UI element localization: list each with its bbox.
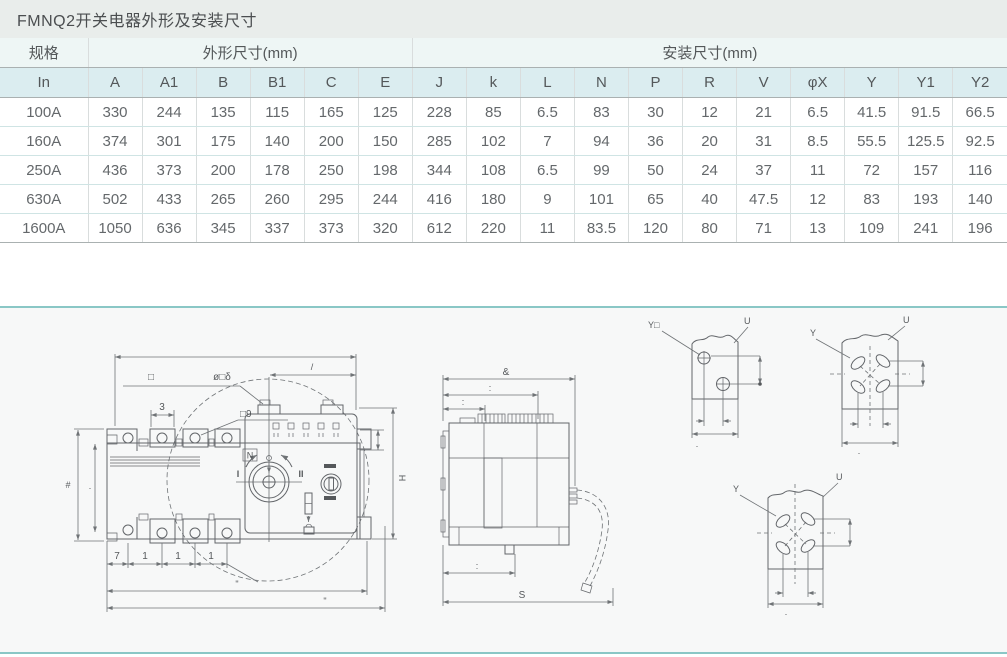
value-cell: 373 [142,156,196,185]
column-header: φX [791,68,845,98]
value-cell: 140 [953,185,1007,214]
value-cell: 193 [899,185,953,214]
table-group-header-row: 规格 外形尺寸(mm) 安装尺寸(mm) [0,38,1007,68]
table-row: 1600A10506363453373733206122201183.51208… [0,214,1007,243]
value-cell: 374 [88,127,142,156]
indicator-squares [273,423,339,437]
value-cell: 20 [683,127,737,156]
value-cell: 265 [196,185,250,214]
position-ii-label: II [298,469,303,479]
spacer [0,243,1007,306]
value-cell: 320 [358,214,412,243]
value-cell: 295 [304,185,358,214]
front-view-drawing: I II N [65,354,407,612]
plate3-plate-label: U [836,472,843,482]
value-cell: 12 [683,98,737,127]
value-cell: 6.5 [520,156,574,185]
plate1-hole-label: Y□ [648,320,660,330]
column-header: E [358,68,412,98]
value-cell: 9 [520,185,574,214]
value-cell: 345 [196,214,250,243]
value-cell: 140 [250,127,304,156]
neutral-pole-label: N [247,451,254,461]
value-cell: 6.5 [791,98,845,127]
key-lock [321,464,341,500]
pitch-dim-label: 1 [175,551,181,562]
plate2-hole-label: Y [810,328,816,338]
value-cell: 102 [466,127,520,156]
value-cell: 72 [845,156,899,185]
right-height-dim-label: H [397,475,407,482]
technical-drawing: I II N [0,308,1007,652]
value-cell: 178 [250,156,304,185]
side-bottom-small-dim-label: : [476,561,479,571]
value-cell: 80 [683,214,737,243]
value-cell: 36 [628,127,682,156]
value-cell: 125.5 [899,127,953,156]
plate2-plate-label: U [903,315,910,325]
value-cell: 200 [196,156,250,185]
table-body: 100A330244135115165125228856.5833012216.… [0,98,1007,243]
value-cell: 50 [628,156,682,185]
value-cell: 373 [304,214,358,243]
spec-cell: 630A [0,185,88,214]
value-cell: 196 [953,214,1007,243]
dimensions-table: 规格 外形尺寸(mm) 安装尺寸(mm) InAA1BB1CEJkLNPRVφX… [0,38,1007,243]
mounting-plate-3: Y U · [733,472,850,619]
value-cell: 40 [683,185,737,214]
inner-height-dim-label: · [89,483,92,493]
column-header: Y1 [899,68,953,98]
value-cell: 101 [574,185,628,214]
column-header: Y2 [953,68,1007,98]
column-header: R [683,68,737,98]
value-cell: 220 [466,214,520,243]
table-row: 160A3743011751402001502851027943620318.5… [0,127,1007,156]
value-cell: 71 [737,214,791,243]
value-cell: 285 [412,127,466,156]
rotary-handle: I II [237,455,304,502]
column-header: B [196,68,250,98]
value-cell: 244 [142,98,196,127]
side-top-dim-label: & [503,367,510,378]
side-view-drawing: & : : : S [441,367,613,606]
side-small-dim-label: : [462,397,465,407]
value-cell: 55.5 [845,127,899,156]
spec-cell: 100A [0,98,88,127]
value-cell: 83 [574,98,628,127]
value-cell: 31 [737,127,791,156]
value-cell: 244 [358,185,412,214]
value-cell: 7 [520,127,574,156]
width-outer-dim-label: " [323,596,326,606]
value-cell: 12 [791,185,845,214]
plate1-dim-label: · [696,441,699,451]
value-cell: 433 [142,185,196,214]
page-title: FMNQ2开关电器外形及安装尺寸 [0,0,1007,38]
column-header: P [628,68,682,98]
value-cell: 157 [899,156,953,185]
value-cell: 115 [250,98,304,127]
side-mid-dim-label: : [489,383,492,393]
table-row: 630A5024332652602952444161809101654047.5… [0,185,1007,214]
value-cell: 109 [845,214,899,243]
value-cell: 416 [412,185,466,214]
front-view-dimensions: / # · H 3 □9 □ ø□δ [65,354,407,612]
handle-cable [569,488,609,593]
value-cell: 612 [412,214,466,243]
mounting-plate-1: Y□ U · [648,316,762,451]
table-row: 100A330244135115165125228856.5833012216.… [0,98,1007,127]
value-cell: 91.5 [899,98,953,127]
value-cell: 175 [196,127,250,156]
table-row: 250A4363732001782501983441086.5995024371… [0,156,1007,185]
value-cell: 120 [628,214,682,243]
spec-header-cell: 规格 [0,38,88,68]
value-cell: 37 [737,156,791,185]
position-i-label: I [237,469,240,479]
column-header: A1 [142,68,196,98]
padlock-slot [304,493,314,534]
value-cell: 30 [628,98,682,127]
pitch-dim-label: 1 [208,551,214,562]
value-cell: 150 [358,127,412,156]
value-cell: 92.5 [953,127,1007,156]
value-cell: 260 [250,185,304,214]
plate3-dim-label: · [785,609,788,619]
top-terminals [139,429,240,447]
value-cell: 83 [845,185,899,214]
value-cell: 24 [683,156,737,185]
value-cell: 6.5 [520,98,574,127]
value-cell: 301 [142,127,196,156]
column-header: L [520,68,574,98]
value-cell: 344 [412,156,466,185]
square9-note: □9 [240,409,252,420]
value-cell: 13 [791,214,845,243]
square-note: □ [148,372,154,383]
side-bottom-dim-label: S [519,590,526,601]
value-cell: 241 [899,214,953,243]
top-right-dim-label: / [311,362,314,372]
side-view-dimensions: & : : : S [443,367,613,606]
column-header-in: In [0,68,88,98]
value-cell: 165 [304,98,358,127]
mounting-plate-2: Y U · [810,315,923,458]
value-cell: 198 [358,156,412,185]
value-cell: 180 [466,185,520,214]
value-cell: 66.5 [953,98,1007,127]
pitch-dim-label: 1 [142,551,148,562]
plate3-hole-label: Y [733,484,739,494]
width-inner-dim-label: " [235,579,238,589]
value-cell: 502 [88,185,142,214]
value-cell: 8.5 [791,127,845,156]
table-column-header-row: InAA1BB1CEJkLNPRVφXYY1Y2 [0,68,1007,98]
value-cell: 21 [737,98,791,127]
phi-note: ø□δ [213,372,231,383]
value-cell: 330 [88,98,142,127]
value-cell: 337 [250,214,304,243]
pitch-dim-label: 7 [114,551,120,562]
spec-cell: 1600A [0,214,88,243]
value-cell: 65 [628,185,682,214]
value-cell: 94 [574,127,628,156]
value-cell: 11 [791,156,845,185]
value-cell: 135 [196,98,250,127]
column-header: C [304,68,358,98]
value-cell: 11 [520,214,574,243]
value-cell: 636 [142,214,196,243]
spec-cell: 160A [0,127,88,156]
technical-drawing-panel: I II N [0,306,1007,654]
column-header: J [412,68,466,98]
group-header-install: 安装尺寸(mm) [412,38,1007,68]
label-strip [110,457,200,466]
column-header: N [574,68,628,98]
plate2-dim-label: · [858,448,861,458]
value-cell: 47.5 [737,185,791,214]
value-cell: 200 [304,127,358,156]
value-cell: 125 [358,98,412,127]
terminal-strip [460,414,553,423]
group-header-outline: 外形尺寸(mm) [88,38,412,68]
column-header: Y [845,68,899,98]
value-cell: 228 [412,98,466,127]
value-cell: 41.5 [845,98,899,127]
value-cell: 436 [88,156,142,185]
column-header: A [88,68,142,98]
column-header: V [737,68,791,98]
value-cell: 250 [304,156,358,185]
spec-cell: 250A [0,156,88,185]
column-header: k [466,68,520,98]
left-height-dim-label: # [65,480,70,490]
value-cell: 108 [466,156,520,185]
value-cell: 99 [574,156,628,185]
dim-3-label: 3 [159,402,165,413]
value-cell: 116 [953,156,1007,185]
value-cell: 83.5 [574,214,628,243]
value-cell: 85 [466,98,520,127]
column-header: B1 [250,68,304,98]
handle-rotation-circle [167,379,369,581]
plate1-plate-label: U [744,316,751,326]
value-cell: 1050 [88,214,142,243]
